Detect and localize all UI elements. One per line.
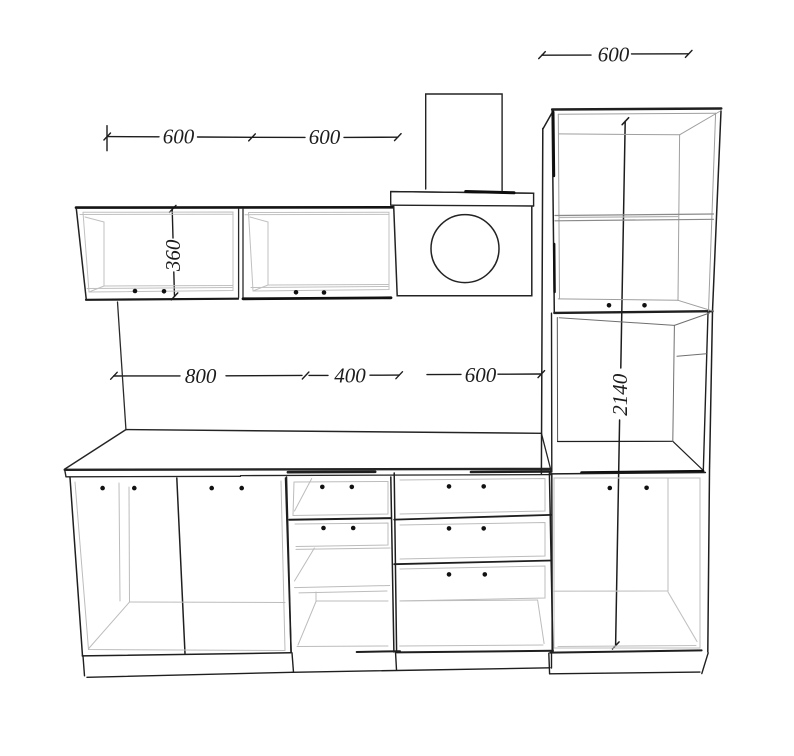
svg-text:600: 600: [598, 43, 630, 67]
svg-text:600: 600: [309, 125, 341, 149]
svg-text:2140: 2140: [608, 373, 632, 416]
svg-text:800: 800: [185, 364, 217, 388]
svg-text:400: 400: [334, 364, 366, 388]
svg-text:600: 600: [465, 363, 497, 387]
svg-text:600: 600: [163, 125, 195, 149]
svg-text:360: 360: [161, 239, 185, 272]
